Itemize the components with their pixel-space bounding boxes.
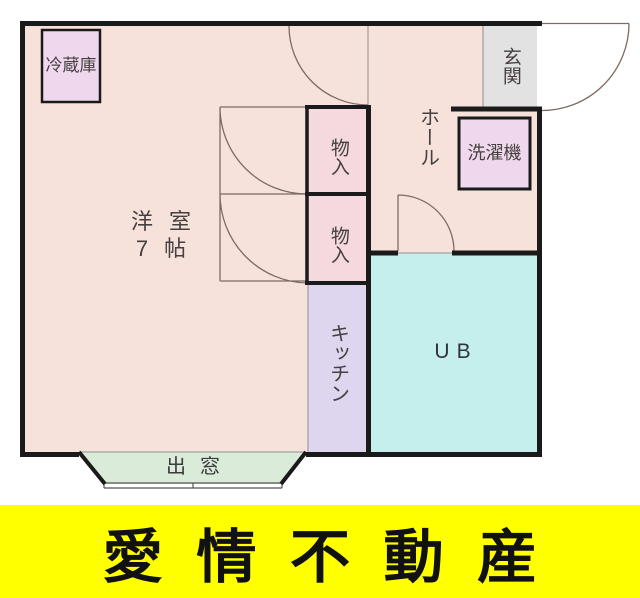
realtor-banner: 愛情不動産 bbox=[0, 505, 640, 598]
floor-plan-drawing bbox=[0, 0, 640, 505]
entrance-floor bbox=[483, 26, 537, 109]
bay-window-floor bbox=[79, 452, 306, 484]
realtor-banner-text: 愛情不動産 bbox=[69, 510, 570, 594]
unit-bath-floor bbox=[369, 253, 538, 452]
entrance-door-swing bbox=[542, 24, 629, 111]
refrigerator-box bbox=[42, 30, 100, 102]
closet-upper-floor bbox=[307, 105, 369, 194]
washing-machine-box bbox=[459, 118, 530, 189]
floor-plan-page: 冷蔵庫 玄関 ホール 洗濯機 物入 物入 洋室 7帖 キッチン UB 出窓 愛情… bbox=[0, 0, 640, 598]
closet-lower-floor bbox=[307, 194, 369, 283]
kitchen-floor bbox=[308, 283, 369, 452]
